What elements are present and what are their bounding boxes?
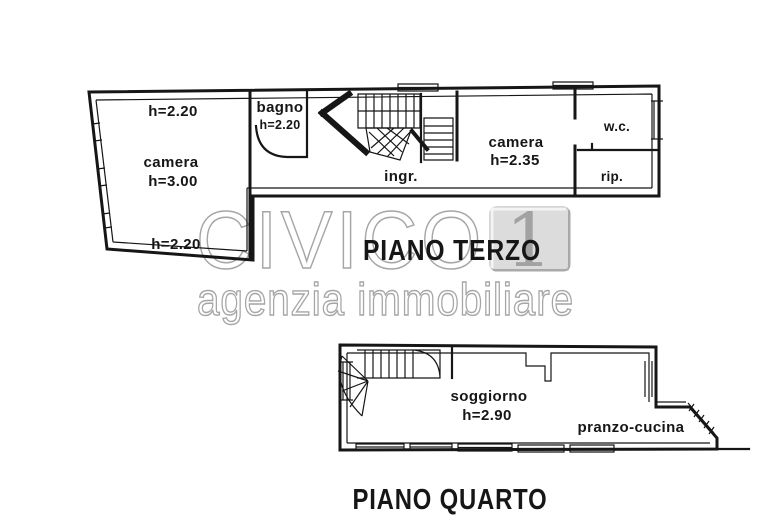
watermark-tagline-text: agenzia immobiliare <box>197 274 574 325</box>
room-label-rip: rip. <box>601 169 623 184</box>
terzo-wc-rip-divider <box>578 144 657 150</box>
floor-title-piano-quarto: PIANO QUARTO <box>353 484 548 516</box>
room-height-soggiorno: h=2.90 <box>462 407 512 424</box>
room-label-ingresso: ingr. <box>384 168 418 185</box>
floor-title-piano-terzo: PIANO TERZO <box>363 235 541 267</box>
quarto-stair-flight <box>357 350 440 378</box>
terzo-bottom-height-label: h=2.20 <box>151 236 201 253</box>
room-label-soggiorno: soggiorno <box>451 388 528 405</box>
quarto-staircase <box>338 347 452 416</box>
room-label-bagno: bagno <box>257 99 304 116</box>
stair-landing-hatch <box>366 128 412 160</box>
floor-plan-piano-quarto: soggiorno h=2.90 pranzo-cucina PIANO QUA… <box>338 345 749 516</box>
room-height-bagno: h=2.20 <box>259 118 300 132</box>
stair-right-flight <box>424 118 453 160</box>
stair-upper-flight <box>358 94 420 128</box>
terzo-right-wall-window <box>651 101 663 139</box>
stair-direction-arrow-icon <box>322 94 366 152</box>
floorplan-canvas: CIVICO 1 agenzia immobiliare <box>0 0 783 527</box>
room-label-camera-right: camera <box>489 134 544 151</box>
room-label-camera-left: camera <box>144 154 199 171</box>
terzo-staircase <box>322 94 453 162</box>
floor-plan-document: CIVICO 1 agenzia immobiliare <box>0 0 783 527</box>
terzo-top-height-label: h=2.20 <box>148 103 198 120</box>
room-label-wc: w.c. <box>603 119 630 134</box>
room-height-camera-left: h=3.00 <box>148 173 198 190</box>
room-label-pranzo-cucina: pranzo-cucina <box>578 419 685 436</box>
room-height-camera-right: h=2.35 <box>490 152 540 169</box>
floor-plan-piano-terzo: h=2.20 camera h=3.00 h=2.20 bagno h=2.20… <box>89 82 663 267</box>
